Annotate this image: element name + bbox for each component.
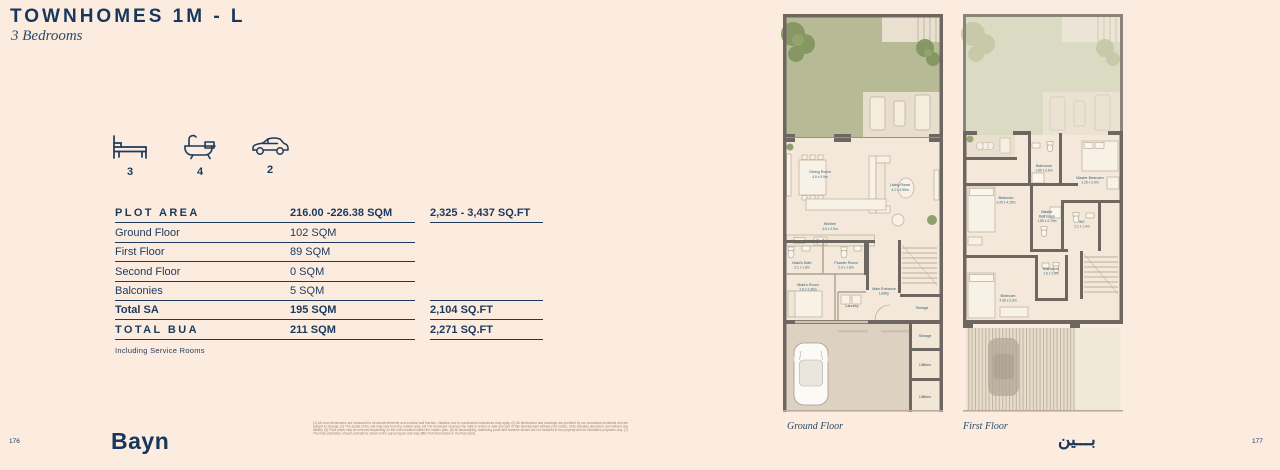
brochure-page: TOWNHOMES 1M - L 3 Bedrooms 3 [0,0,1280,470]
room-label: Bedroom [1001,294,1016,298]
row-sqft [430,223,543,242]
bathtub-icon [182,134,218,160]
room-label: WC [1079,220,1085,224]
pergola [967,328,1075,411]
room-label: Lobby [879,292,889,296]
row-sqft: 2,104 SQ.FT [430,301,543,320]
row-sqm: 89 SQM [290,246,330,258]
table-row: First Floor89 SQM [115,243,545,262]
table-footnote: Including Service Rooms [115,346,545,355]
bed-icon [111,134,149,160]
feature-icons: 3 4 2 [108,134,292,178]
disclaimer-text: (1) All room dimensions are measured to … [313,422,628,436]
table-row: TOTAL BUA211 SQM 2,271 SQ.FT [115,320,545,339]
row-sqm: 102 SQM [290,227,336,239]
page-subtitle: 3 Bedrooms [11,28,83,45]
row-label: TOTAL BUA [115,324,290,336]
row-sqft [430,282,543,301]
plant [787,144,794,151]
page-number-right: 177 [1252,438,1263,445]
room-label: Utilities [919,363,931,367]
ground-floor-caption: Ground Floor [787,421,843,432]
room-dims: 4.6 x 3.9m [812,175,828,179]
area-table: PLOT AREA216.00 -226.38 SQM 2,325 - 3,43… [115,204,545,355]
room-label: Main Entrance [872,287,896,291]
parking-count: 2 [248,164,292,176]
table-row: Total SA195 SQM 2,104 SQ.FT [115,301,545,320]
room-dims: 2.1 x 1.8m [794,266,810,270]
feature-bedrooms: 3 [108,134,152,178]
entry-steps [882,16,941,42]
row-sqm: 0 SQM [290,266,324,278]
row-sqft [430,262,543,281]
row-sqft [430,243,543,262]
brand-logo-arabic: بـــين [1058,430,1096,450]
row-label: Second Floor [115,266,290,278]
room-label: Storage [916,306,929,310]
row-label: Balconies [115,285,290,297]
room-label: Maid's Bath [792,261,811,265]
room-dims: 1.85 x 2.6m [1035,169,1052,173]
room-label: Kitchen [824,222,836,226]
first-floor-plan: Bathroom 1.85 x 2.6m Master Bedroom 3.25… [958,7,1128,419]
row-sqm: 5 SQM [290,285,324,297]
row-sqm: 211 SQM [290,324,336,336]
bedrooms-count: 3 [108,166,152,178]
table-row: Ground Floor102 SQM [115,223,545,242]
bathrooms-count: 4 [178,166,222,178]
room-dims: 4.6 x 2.5m [822,227,838,231]
room-label: Master Bedroom [1076,176,1103,180]
room-dims: 4.35 x 3.3m [999,299,1016,303]
room-label: Storage [919,334,932,338]
room-label: Bedroom [999,196,1014,200]
car-icon [250,134,290,158]
room-label: Bathroom [1039,215,1055,219]
room-dims: 3.25 x 3.9m [1081,181,1098,185]
room-label: Powder Room [834,261,857,265]
room-label: Living Room [890,183,911,187]
plant [967,136,974,143]
row-label: Total SA [115,304,290,316]
room-label: Master [1041,210,1053,214]
room-dims: 2.8 x 2.35m [799,288,816,292]
room-dims: 4.1 x 5.95m [891,188,908,192]
roof-slab [1075,328,1121,411]
room-dims: 1.9 x 2.6m [1043,272,1059,276]
car-under-pergola [988,338,1019,396]
feature-parking: 2 [248,134,292,178]
row-sqm: 195 SQM [290,304,336,316]
row-sqm: 216.00 -226.38 SQM [290,207,392,219]
first-floor-drawing: Bathroom 1.85 x 2.6m Master Bedroom 3.25… [958,7,1128,419]
row-sqft: 2,271 SQ.FT [430,320,543,339]
table-row: Second Floor0 SQM [115,262,545,281]
room-dims: 2.1 x 1.9m [1074,225,1090,229]
car-top-view [792,343,831,405]
room-label: Utilities [919,395,931,399]
first-floor-caption: First Floor [963,421,1008,432]
room-label: Bathroom [1043,267,1059,271]
brand-logo: Bayn [111,428,169,455]
room-label: Bathroom [1036,164,1052,168]
room-label: Dining Room [809,170,830,174]
page-number-left: 176 [9,438,20,445]
row-sqft: 2,325 - 3,437 SQ.FT [430,204,543,223]
row-label: PLOT AREA [115,207,290,219]
room-dims: 3.25 x 4.25m [996,201,1015,205]
row-label: First Floor [115,246,290,258]
ground-floor-drawing: Dining Room 4.6 x 3.9m Living Room 4.1 x… [778,7,948,419]
ground-floor-plan: Dining Room 4.6 x 3.9m Living Room 4.1 x… [778,7,948,419]
room-label: Laundry [845,304,858,308]
row-label: Ground Floor [115,227,290,239]
plant [927,215,937,225]
room-label: Maid's Room [797,283,818,287]
feature-bathrooms: 4 [178,134,222,178]
room-dims: 2.0 x 1.8m [838,266,854,270]
page-title: TOWNHOMES 1M - L [10,6,246,28]
table-row: PLOT AREA216.00 -226.38 SQM 2,325 - 3,43… [115,204,545,223]
table-row: Balconies5 SQM [115,282,545,301]
room-dims: 1.85 x 2.75m [1037,219,1056,223]
